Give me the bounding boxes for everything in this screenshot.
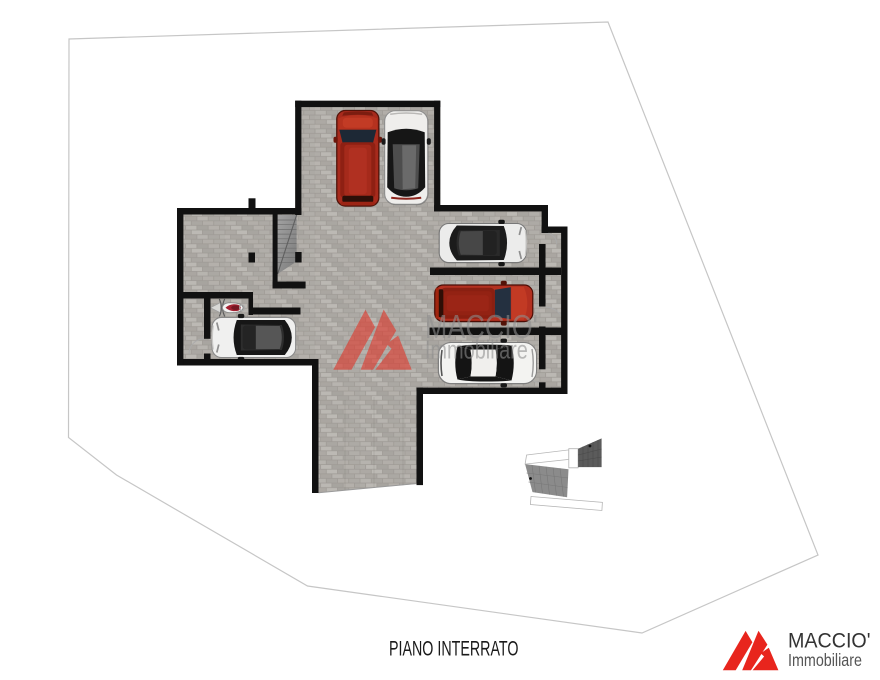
svg-text:Immobiliare: Immobiliare [425,335,528,365]
svg-text:PIANO INTERRATO: PIANO INTERRATO [389,637,519,661]
svg-text:Immobiliare: Immobiliare [788,650,862,670]
